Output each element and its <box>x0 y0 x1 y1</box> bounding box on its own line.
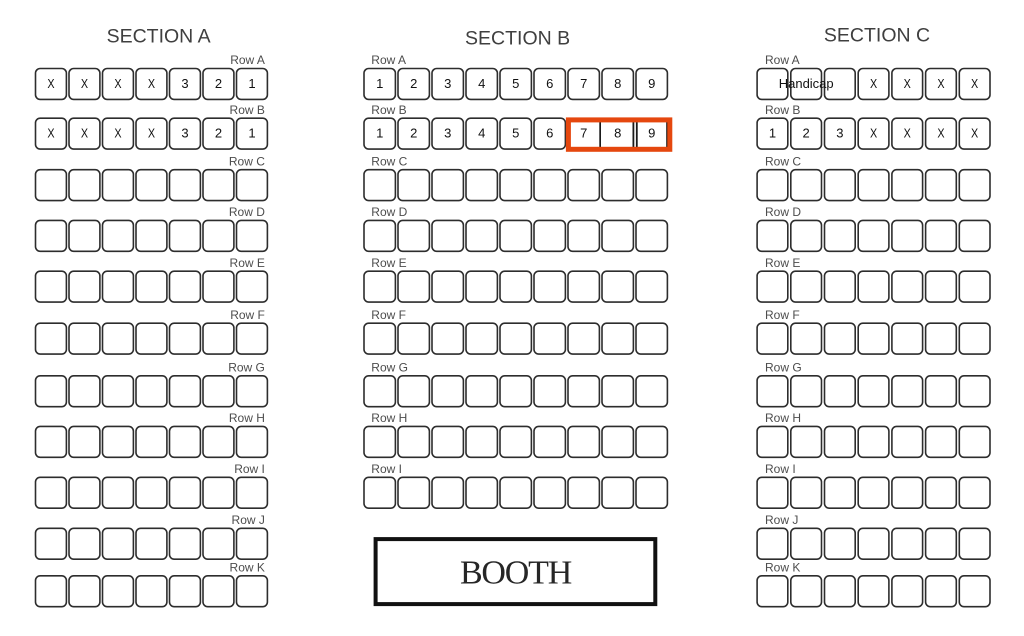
svg-text:SECTION A: SECTION A <box>107 26 211 48</box>
svg-text:X: X <box>81 126 88 141</box>
svg-text:X: X <box>47 76 54 91</box>
svg-text:4: 4 <box>478 76 485 91</box>
svg-text:8: 8 <box>614 76 621 91</box>
svg-text:X: X <box>937 76 944 91</box>
svg-text:X: X <box>904 126 911 141</box>
svg-text:Row D: Row D <box>765 205 801 219</box>
svg-text:Row J: Row J <box>232 513 265 527</box>
svg-text:Row B: Row B <box>765 103 800 117</box>
svg-text:Row A: Row A <box>371 53 406 67</box>
svg-text:X: X <box>971 76 978 91</box>
svg-text:2: 2 <box>803 126 810 141</box>
svg-text:Row H: Row H <box>371 411 407 425</box>
svg-text:Row K: Row K <box>765 560 800 574</box>
svg-text:X: X <box>114 76 121 91</box>
svg-text:Row C: Row C <box>765 154 801 168</box>
svg-text:3: 3 <box>444 126 451 141</box>
svg-text:SECTION B: SECTION B <box>465 28 570 50</box>
svg-text:Row C: Row C <box>371 154 407 168</box>
svg-text:X: X <box>870 126 877 141</box>
svg-text:Row E: Row E <box>230 256 265 270</box>
svg-text:6: 6 <box>546 76 553 91</box>
svg-text:5: 5 <box>512 126 519 141</box>
svg-text:SECTION C: SECTION C <box>824 25 930 47</box>
svg-text:7: 7 <box>580 76 587 91</box>
svg-text:Row B: Row B <box>230 103 265 117</box>
svg-text:X: X <box>148 126 155 141</box>
svg-text:Row A: Row A <box>765 53 800 67</box>
svg-text:3: 3 <box>444 76 451 91</box>
svg-text:1: 1 <box>376 76 383 91</box>
svg-text:Row G: Row G <box>228 360 265 374</box>
svg-text:2: 2 <box>215 126 222 141</box>
svg-text:1: 1 <box>769 126 776 141</box>
svg-text:2: 2 <box>410 126 417 141</box>
svg-text:9: 9 <box>648 126 655 141</box>
svg-text:3: 3 <box>836 126 843 141</box>
svg-text:Handicap: Handicap <box>779 76 834 91</box>
svg-text:X: X <box>870 76 877 91</box>
svg-text:X: X <box>81 76 88 91</box>
svg-text:X: X <box>148 76 155 91</box>
svg-text:Row I: Row I <box>371 462 402 476</box>
svg-text:Row D: Row D <box>371 205 407 219</box>
svg-text:1: 1 <box>376 126 383 141</box>
svg-text:Row H: Row H <box>765 411 801 425</box>
svg-text:8: 8 <box>614 126 621 141</box>
svg-text:Row H: Row H <box>229 411 265 425</box>
svg-text:Row C: Row C <box>229 154 265 168</box>
svg-text:3: 3 <box>181 76 188 91</box>
svg-text:BOOTH: BOOTH <box>460 554 572 591</box>
svg-text:1: 1 <box>248 76 255 91</box>
svg-text:Row E: Row E <box>371 256 406 270</box>
svg-text:6: 6 <box>546 126 553 141</box>
svg-text:4: 4 <box>478 126 485 141</box>
svg-text:1: 1 <box>248 126 255 141</box>
svg-text:Row B: Row B <box>371 103 406 117</box>
svg-text:Row I: Row I <box>765 462 796 476</box>
svg-text:Row I: Row I <box>234 462 265 476</box>
svg-text:Row K: Row K <box>230 560 265 574</box>
svg-text:Row G: Row G <box>371 360 408 374</box>
svg-text:Row F: Row F <box>371 308 406 322</box>
svg-text:9: 9 <box>648 76 655 91</box>
svg-text:Row D: Row D <box>229 205 265 219</box>
svg-text:Row F: Row F <box>230 308 265 322</box>
svg-text:5: 5 <box>512 76 519 91</box>
svg-text:2: 2 <box>215 76 222 91</box>
svg-text:Row F: Row F <box>765 308 800 322</box>
svg-text:X: X <box>114 126 121 141</box>
svg-text:3: 3 <box>181 126 188 141</box>
svg-text:X: X <box>47 126 54 141</box>
svg-text:X: X <box>971 126 978 141</box>
svg-text:X: X <box>904 76 911 91</box>
svg-text:Row G: Row G <box>765 360 802 374</box>
svg-text:X: X <box>937 126 944 141</box>
svg-text:Row A: Row A <box>230 53 265 67</box>
svg-text:Row E: Row E <box>765 256 800 270</box>
svg-text:2: 2 <box>410 76 417 91</box>
svg-text:7: 7 <box>580 126 587 141</box>
svg-text:Row J: Row J <box>765 513 798 527</box>
